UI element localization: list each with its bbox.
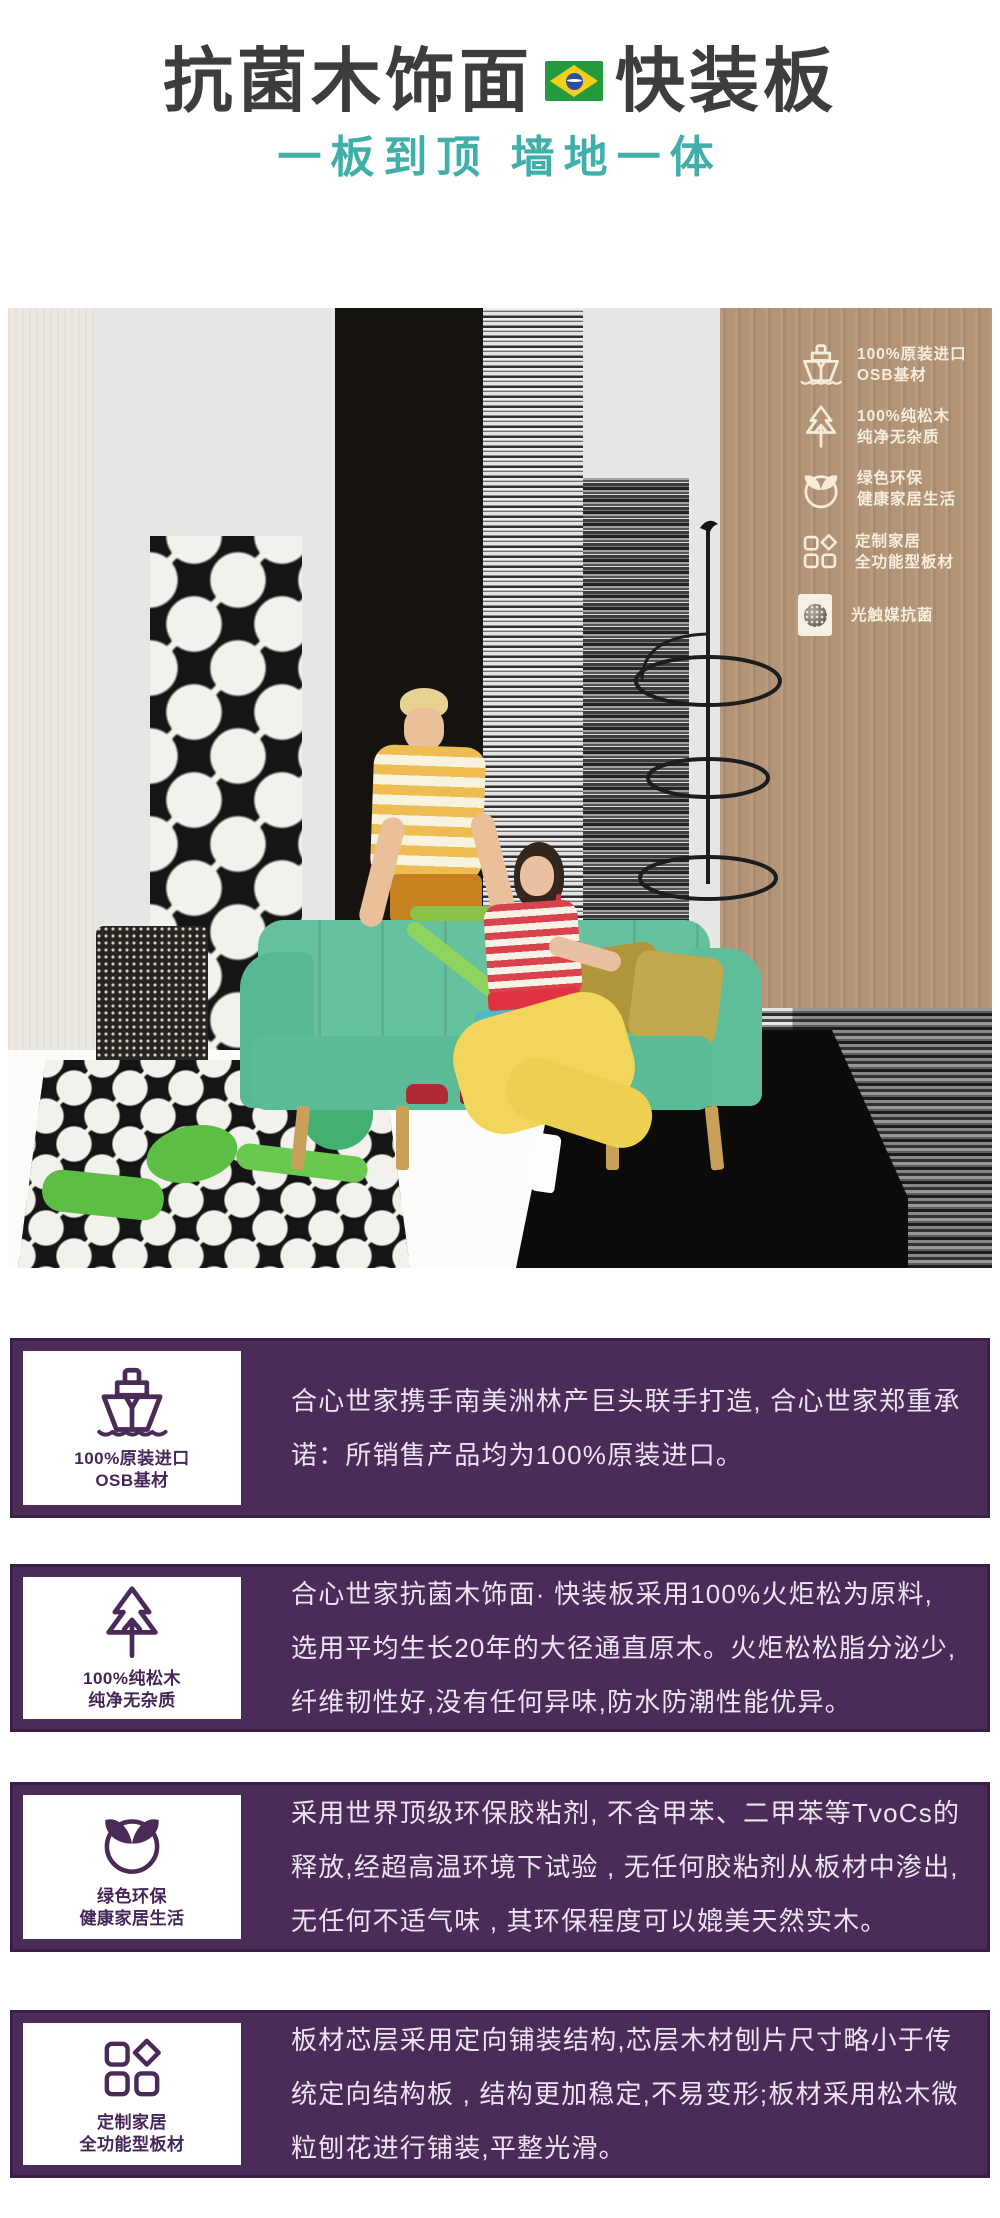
card-icon-label: 绿色环保 bbox=[80, 1886, 185, 1908]
mustard-pillow bbox=[627, 949, 725, 1047]
feature-cards: 100%原装进口 OSB基材 合心世家携手南美洲林产巨头联手打造, 合心世家郑重… bbox=[0, 1338, 1000, 2178]
man-face bbox=[404, 708, 444, 750]
feature-line: 光触媒抗菌 bbox=[851, 605, 934, 626]
card-text: 采用世界顶级环保胶粘剂, 不含甲苯、二甲苯等TvoCs的释放,经超高温环境下试验… bbox=[291, 1786, 987, 1948]
card-text: 合心世家抗菌木饰面· 快装板采用100%火炬松为原料, 选用平均生长20年的大径… bbox=[291, 1567, 987, 1729]
card-icon-label: 100%原装进口 bbox=[74, 1448, 189, 1470]
eco-leaf-icon bbox=[94, 1804, 170, 1880]
card-import: 100%原装进口 OSB基材 合心世家携手南美洲林产巨头联手打造, 合心世家郑重… bbox=[10, 1338, 990, 1518]
spiral-rack bbox=[628, 516, 788, 916]
photo-feature-photocatalyst: 光触媒抗菌 bbox=[798, 594, 934, 636]
pine-tree-icon bbox=[93, 1584, 171, 1662]
ship-icon bbox=[93, 1364, 171, 1442]
cream-wall-panel bbox=[8, 308, 94, 1078]
card-icon-label: 定制家居 bbox=[80, 2112, 185, 2134]
sofa-leg bbox=[396, 1106, 409, 1170]
card-icon-label: 健康家居生活 bbox=[80, 1908, 185, 1930]
feature-line: 健康家居生活 bbox=[857, 489, 956, 510]
red-sneaker bbox=[406, 1084, 448, 1104]
brazil-flag-icon bbox=[545, 61, 603, 101]
card-icon-box: 绿色环保 健康家居生活 bbox=[23, 1795, 241, 1939]
photo-feature-custom: 定制家居全功能型板材 bbox=[798, 530, 954, 574]
card-icon-box: 100%原装进口 OSB基材 bbox=[23, 1351, 241, 1505]
feature-line: 全功能型板材 bbox=[855, 552, 954, 573]
title-left: 抗菌木饰面 bbox=[163, 38, 533, 124]
panel-grid-icon bbox=[798, 530, 842, 574]
feature-line: 定制家居 bbox=[855, 531, 954, 552]
card-structure: 定制家居 全功能型板材 板材芯层采用定向铺装结构,芯层木材刨片尺寸略小于传统定向… bbox=[10, 2010, 990, 2178]
feature-line: 纯净无杂质 bbox=[857, 427, 950, 448]
page-subtitle: 一板到顶 墙地一体 bbox=[0, 132, 1000, 184]
eco-leaf-icon bbox=[798, 466, 844, 512]
woman-face bbox=[520, 856, 554, 896]
showroom-photo: 100%原装进口OSB基材 100%纯松木纯净无杂质 绿色环保健康家居生活 定制… bbox=[8, 308, 992, 1268]
card-icon-label: 纯净无杂质 bbox=[83, 1690, 181, 1712]
card-text: 板材芯层采用定向铺装结构,芯层木材刨片尺寸略小于传统定向结构板 , 结构更加稳定… bbox=[291, 2013, 987, 2175]
pine-tree-icon bbox=[798, 404, 844, 450]
feature-line: 100%原装进口 bbox=[857, 344, 967, 365]
photo-feature-import: 100%原装进口OSB基材 bbox=[798, 342, 967, 388]
card-icon-label: 100%纯松木 bbox=[83, 1668, 181, 1690]
page-title: 抗菌木饰面 快装板 bbox=[0, 38, 1000, 124]
card-text: 合心世家携手南美洲林产巨头联手打造, 合心世家郑重承诺：所销售产品均为100%原… bbox=[291, 1374, 987, 1482]
card-icon-label: 全功能型板材 bbox=[80, 2134, 185, 2156]
photo-feature-pine: 100%纯松木纯净无杂质 bbox=[798, 404, 950, 450]
panel-grid-icon bbox=[95, 2032, 169, 2106]
ship-icon bbox=[798, 342, 844, 388]
photo-feature-eco: 绿色环保健康家居生活 bbox=[798, 466, 956, 512]
feature-line: 绿色环保 bbox=[857, 468, 956, 489]
photocatalyst-icon bbox=[798, 594, 832, 636]
header: 抗菌木饰面 快装板 一板到顶 墙地一体 bbox=[0, 0, 1000, 184]
card-icon-box: 100%纯松木 纯净无杂质 bbox=[23, 1577, 241, 1719]
card-eco: 绿色环保 健康家居生活 采用世界顶级环保胶粘剂, 不含甲苯、二甲苯等TvoCs的… bbox=[10, 1782, 990, 1952]
card-icon-box: 定制家居 全功能型板材 bbox=[23, 2023, 241, 2165]
title-right: 快装板 bbox=[615, 38, 837, 124]
feature-line: 100%纯松木 bbox=[857, 406, 950, 427]
bird-silhouette bbox=[700, 521, 718, 532]
feature-line: OSB基材 bbox=[857, 365, 967, 386]
card-pine: 100%纯松木 纯净无杂质 合心世家抗菌木饰面· 快装板采用100%火炬松为原料… bbox=[10, 1564, 990, 1732]
card-icon-label: OSB基材 bbox=[74, 1470, 189, 1492]
